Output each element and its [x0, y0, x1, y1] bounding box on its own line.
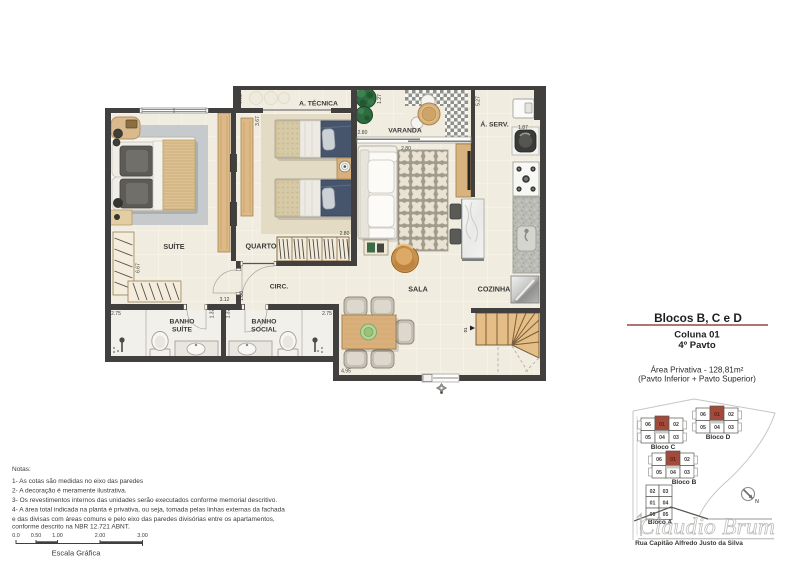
svg-text:(Pavto Inferior + Pavto Superi: (Pavto Inferior + Pavto Superior): [638, 375, 756, 384]
svg-text:2.00: 2.00: [95, 533, 106, 539]
svg-text:3.12: 3.12: [220, 297, 230, 303]
svg-text:02: 02: [684, 457, 690, 463]
svg-text:Área Privativa - 128,81m²: Área Privativa - 128,81m²: [651, 365, 744, 375]
svg-text:0.62: 0.62: [238, 94, 244, 104]
svg-text:6.67: 6.67: [136, 263, 142, 273]
svg-text:4.95: 4.95: [341, 369, 351, 375]
svg-text:Coluna 01: Coluna 01: [674, 330, 720, 341]
svg-text:03: 03: [728, 425, 734, 431]
svg-text:BANHO: BANHO: [170, 319, 195, 326]
svg-text:2- A decoração é meramente ilu: 2- A decoração é meramente ilustrativa.: [12, 488, 127, 495]
svg-text:BANHO: BANHO: [252, 319, 277, 326]
svg-text:02: 02: [728, 412, 734, 418]
svg-text:01: 01: [714, 412, 720, 418]
svg-text:04: 04: [663, 501, 669, 507]
svg-text:Bloco D: Bloco D: [706, 434, 731, 441]
svg-text:e das divisas com áreas comuns: e das divisas com áreas comuns e pelo ei…: [12, 516, 275, 523]
svg-text:2.80: 2.80: [401, 146, 411, 152]
svg-text:conforme descrito na NBR 12.72: conforme descrito na NBR 12.721 ABNT.: [12, 524, 130, 531]
svg-text:04: 04: [670, 470, 676, 476]
svg-text:03: 03: [673, 435, 679, 441]
svg-text:1.27: 1.27: [377, 94, 383, 104]
svg-text:1.32: 1.32: [226, 308, 232, 318]
svg-text:Blocos B, C e D: Blocos B, C e D: [654, 311, 742, 325]
svg-text:1.32: 1.32: [210, 308, 216, 318]
svg-text:04: 04: [714, 425, 720, 431]
svg-text:1.87: 1.87: [518, 125, 528, 131]
svg-text:1.00: 1.00: [239, 291, 245, 301]
svg-text:05: 05: [700, 425, 706, 431]
svg-text:02: 02: [650, 489, 656, 495]
svg-text:2.75: 2.75: [322, 311, 332, 317]
svg-text:02: 02: [673, 422, 679, 428]
svg-text:CIRC.: CIRC.: [270, 284, 289, 291]
svg-text:01: 01: [650, 501, 656, 507]
svg-text:5.27: 5.27: [476, 96, 482, 106]
svg-text:05: 05: [645, 435, 651, 441]
svg-text:04: 04: [659, 435, 665, 441]
svg-text:2.80: 2.80: [340, 231, 350, 237]
svg-text:A. TÉCNICA: A. TÉCNICA: [299, 99, 338, 108]
svg-text:SALA: SALA: [408, 285, 428, 294]
svg-text:Claudio Brum: Claudio Brum: [639, 514, 775, 540]
svg-text:Á. SERV.: Á. SERV.: [480, 120, 508, 129]
svg-text:VARANDA: VARANDA: [388, 128, 422, 135]
svg-text:0.0: 0.0: [12, 533, 20, 539]
svg-text:SOCIAL: SOCIAL: [251, 327, 277, 334]
svg-text:Bloco B: Bloco B: [672, 479, 697, 486]
svg-text:N: N: [755, 499, 759, 505]
svg-text:4º Pavto: 4º Pavto: [678, 340, 715, 351]
svg-text:01: 01: [463, 327, 468, 332]
svg-text:3.67: 3.67: [255, 116, 261, 126]
svg-text:05: 05: [656, 470, 662, 476]
svg-text:06: 06: [700, 412, 706, 418]
svg-text:SUÍTE: SUÍTE: [172, 325, 192, 334]
svg-text:Rua Capitão Alfredo Justo da S: Rua Capitão Alfredo Justo da Silva: [635, 540, 743, 547]
svg-text:4- A área total indicada na pl: 4- A área total indicada na planta é pri…: [12, 507, 285, 514]
svg-text:COZINHA: COZINHA: [478, 285, 511, 294]
svg-text:QUARTO: QUARTO: [245, 242, 276, 251]
svg-text:06: 06: [645, 422, 651, 428]
svg-text:3.00: 3.00: [137, 533, 148, 539]
svg-text:2.75: 2.75: [111, 311, 121, 317]
svg-text:01: 01: [659, 422, 665, 428]
svg-text:Escala Gráfica: Escala Gráfica: [52, 549, 102, 558]
svg-text:03: 03: [684, 470, 690, 476]
svg-text:1- As cotas são medidas no eix: 1- As cotas são medidas no eixo das pare…: [12, 478, 144, 485]
svg-text:06: 06: [656, 457, 662, 463]
svg-text:Bloco C: Bloco C: [651, 444, 676, 451]
svg-text:Notas:: Notas:: [12, 466, 31, 473]
svg-text:03: 03: [663, 489, 669, 495]
svg-text:SUÍTE: SUÍTE: [163, 242, 184, 251]
svg-text:0.50: 0.50: [31, 533, 42, 539]
svg-text:3- Os revestimentos internos d: 3- Os revestimentos internos das unidade…: [12, 497, 277, 504]
svg-text:2.80: 2.80: [358, 130, 368, 136]
svg-text:1.00: 1.00: [52, 533, 63, 539]
svg-text:01: 01: [670, 457, 676, 463]
